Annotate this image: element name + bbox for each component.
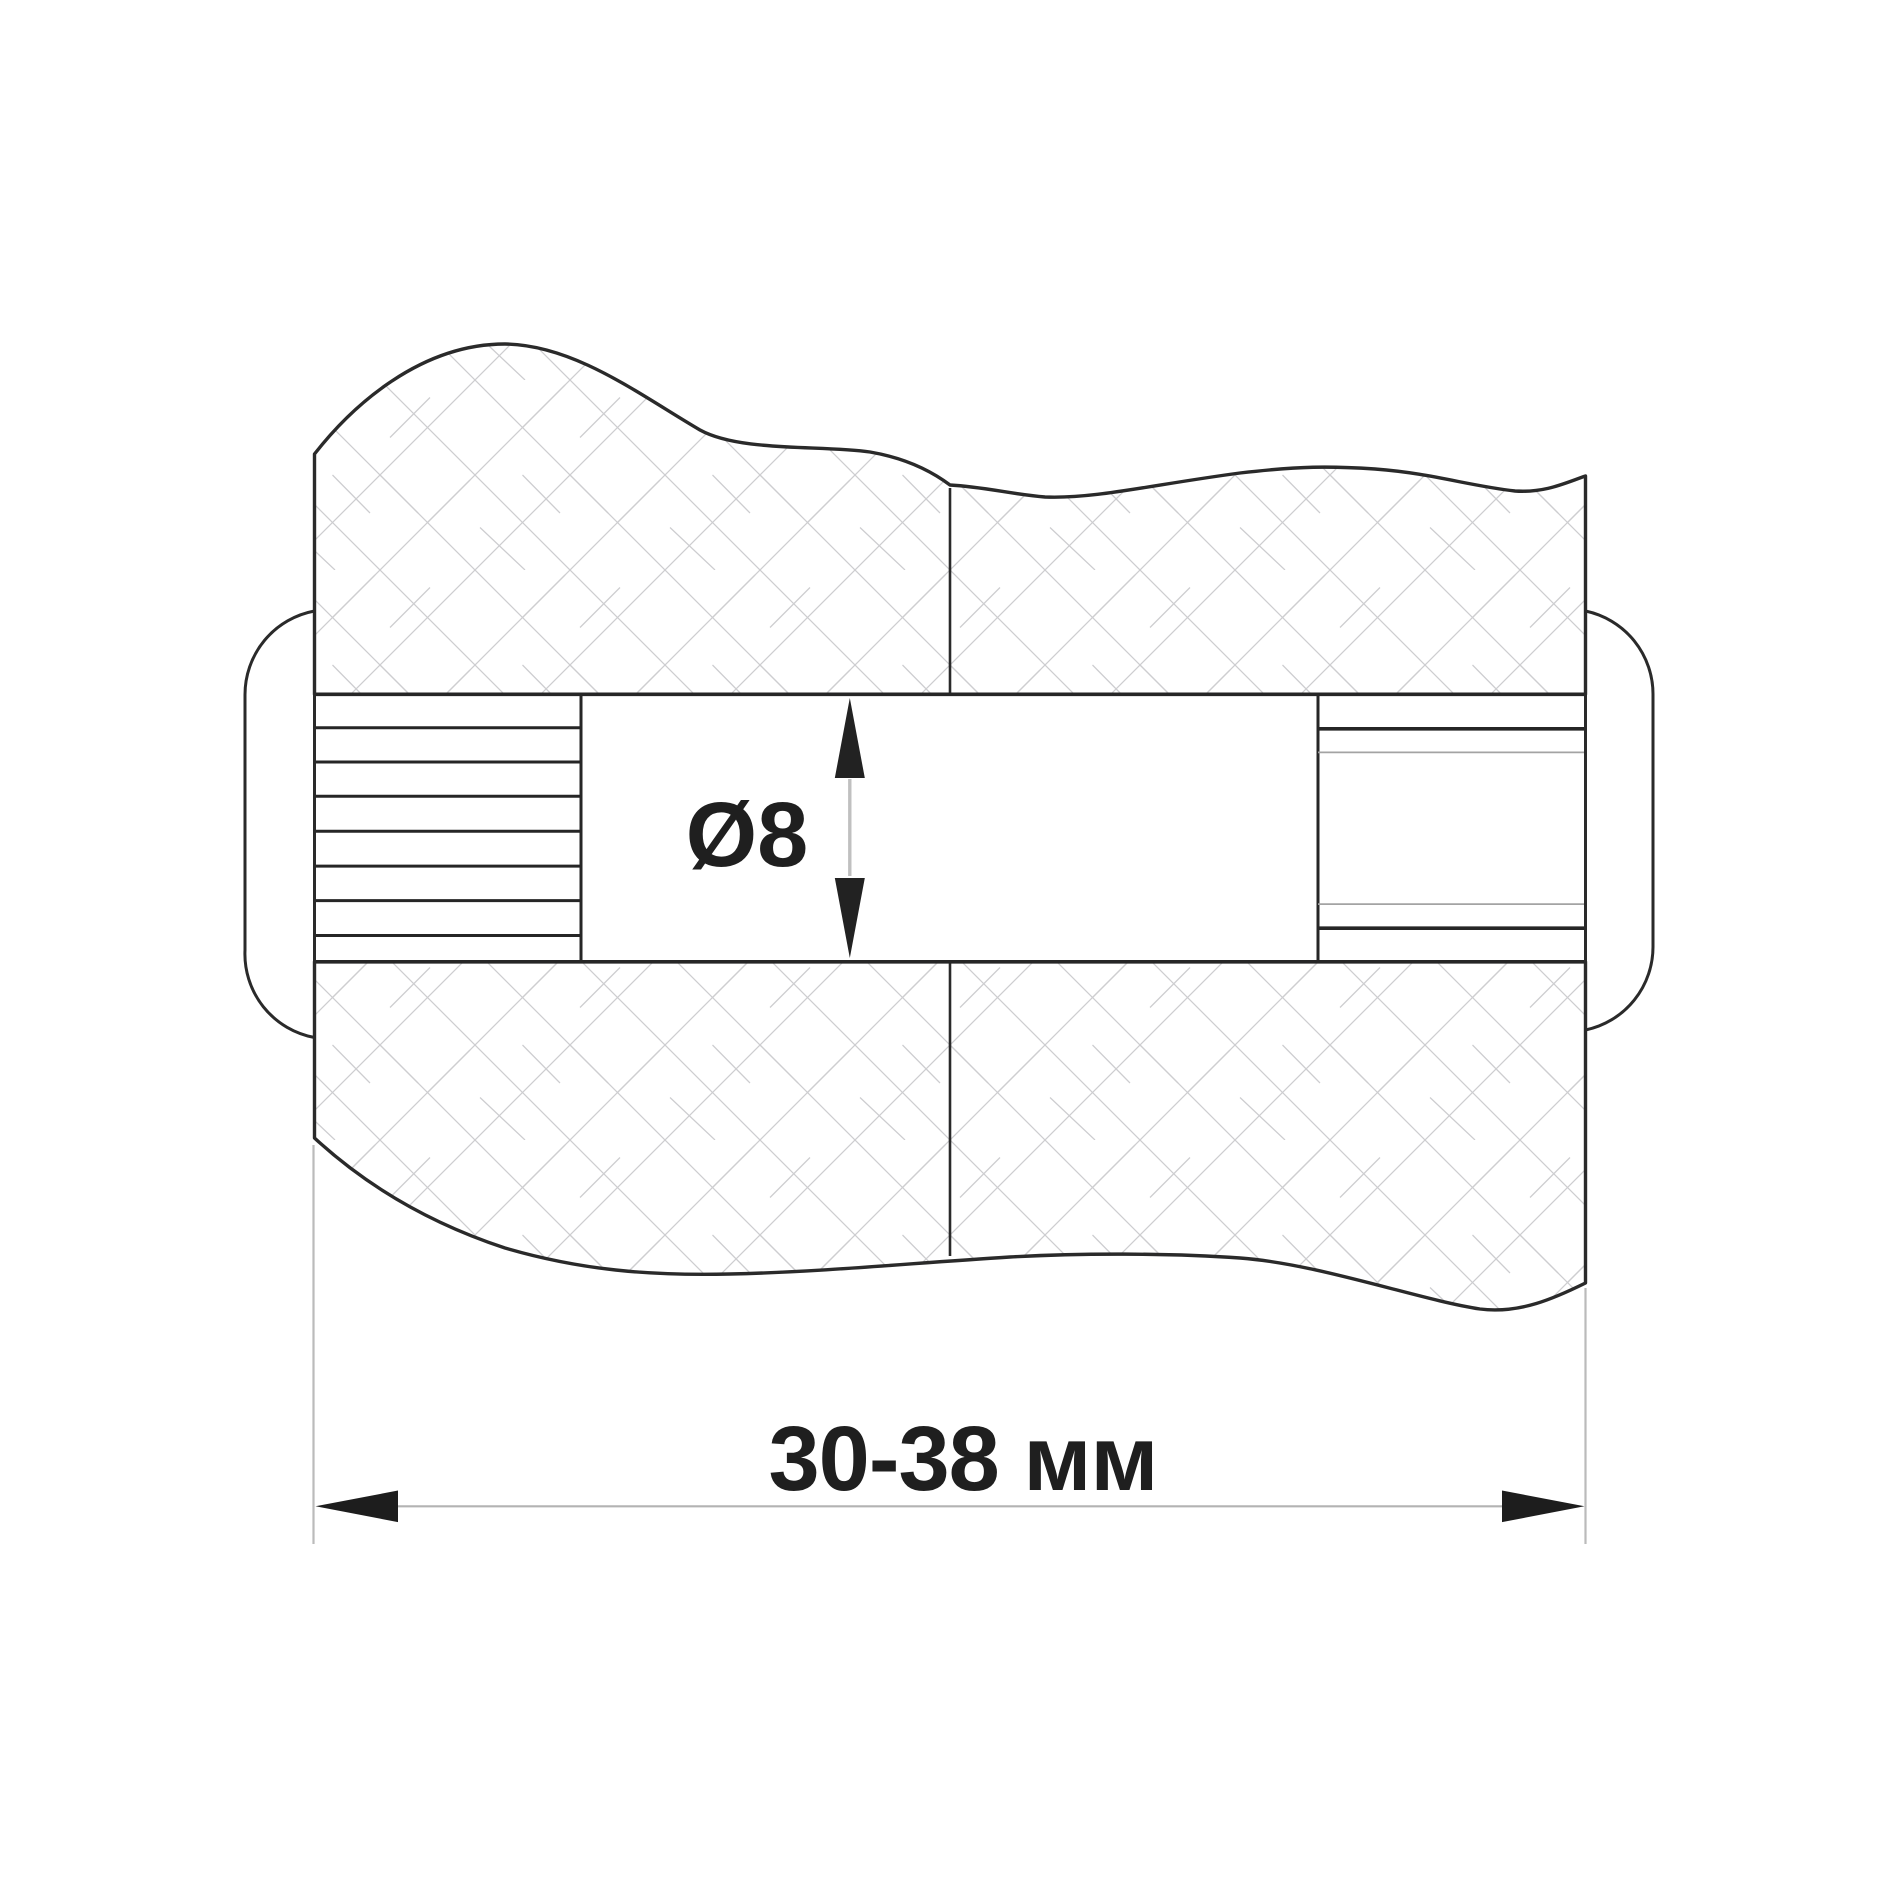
svg-text:30-38 мм: 30-38 мм [769,1408,1158,1510]
svg-text:Ø8: Ø8 [686,784,809,886]
